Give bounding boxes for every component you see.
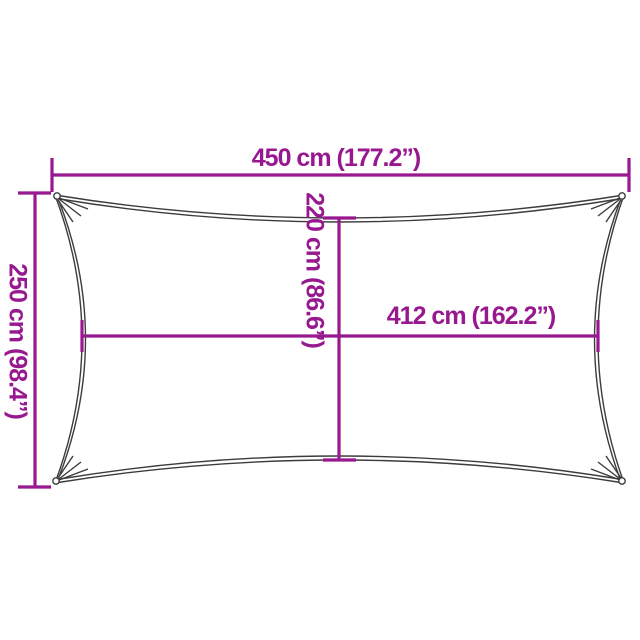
product-dimension-diagram: 450 cm (177.2”) 250 cm (98.4”) 220 cm (8… (0, 0, 640, 640)
grommet-ring-bottom-left (53, 478, 59, 484)
dimension-label-inner-height: 220 cm (86.6”) (302, 192, 327, 348)
dimension-label-height: 250 cm (98.4”) (5, 263, 30, 419)
grommet-ring-bottom-right (619, 478, 625, 484)
dimension-label-width: 450 cm (177.2”) (252, 146, 420, 171)
dimension-label-inner-width: 412 cm (162.2”) (387, 304, 555, 329)
grommet-ring-top-right (619, 193, 625, 199)
grommet-ring-top-left (54, 193, 60, 199)
